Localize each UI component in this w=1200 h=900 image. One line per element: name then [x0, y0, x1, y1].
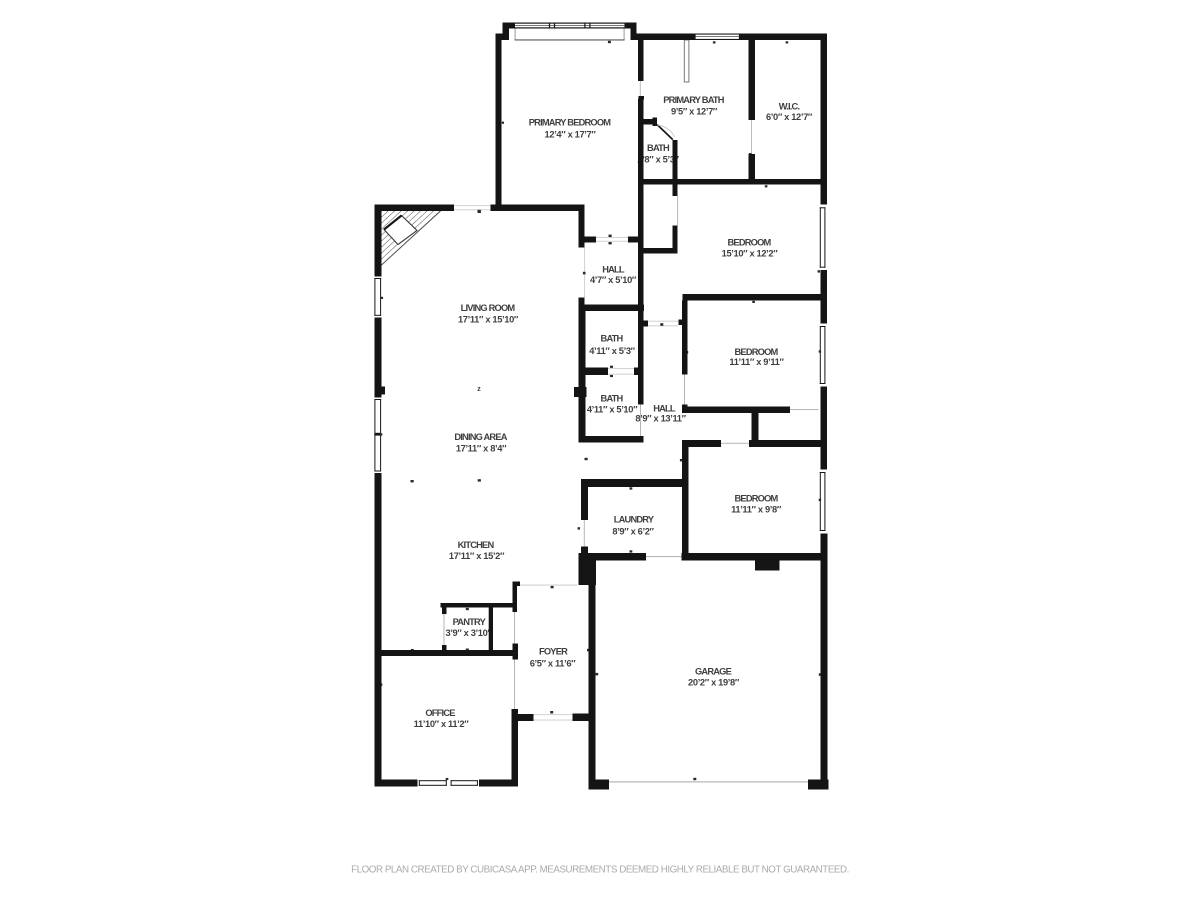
- svg-text:OFFICE: OFFICE: [425, 708, 455, 718]
- svg-text:BATH: BATH: [601, 393, 624, 403]
- svg-text:4’7″ x 5’10″: 4’7″ x 5’10″: [590, 275, 637, 285]
- svg-text:FOYER: FOYER: [539, 646, 568, 656]
- svg-text:17’11″ x 15’10″: 17’11″ x 15’10″: [458, 315, 519, 325]
- svg-text:BEDROOM: BEDROOM: [728, 238, 772, 248]
- svg-text:DINING AREA: DINING AREA: [454, 432, 507, 442]
- svg-text:W.I.C.: W.I.C.: [779, 101, 800, 111]
- svg-text:17’11″ x 15’2″: 17’11″ x 15’2″: [449, 551, 505, 561]
- svg-text:15’10″ x 12’2″: 15’10″ x 12’2″: [722, 249, 779, 259]
- svg-text:4’11″ x 5’10″: 4’11″ x 5’10″: [587, 404, 638, 414]
- svg-text:LIVING ROOM: LIVING ROOM: [461, 303, 516, 313]
- svg-text:BEDROOM: BEDROOM: [735, 493, 779, 503]
- svg-text:8’9″ x 6’2″: 8’9″ x 6’2″: [612, 526, 654, 536]
- svg-text:PANTRY: PANTRY: [453, 617, 487, 627]
- svg-text:11’11″ x 9’11″: 11’11″ x 9’11″: [729, 357, 784, 367]
- svg-text:HALL: HALL: [602, 264, 625, 274]
- svg-text:11’11″ x 9’8″: 11’11″ x 9’8″: [731, 505, 782, 515]
- svg-text:4’11″ x 5’3″: 4’11″ x 5’3″: [589, 346, 635, 356]
- svg-text:PRIMARY BEDROOM: PRIMARY BEDROOM: [529, 118, 612, 128]
- svg-text:20’2″ x 19’8″: 20’2″ x 19’8″: [688, 678, 740, 688]
- svg-text:FLOOR PLAN CREATED BY CUBICASA: FLOOR PLAN CREATED BY CUBICASA APP. MEAS…: [351, 865, 849, 876]
- svg-text:PRIMARY BATH: PRIMARY BATH: [663, 95, 725, 105]
- svg-text:GARAGE: GARAGE: [695, 667, 732, 677]
- svg-text:8’9″ x 13’11″: 8’9″ x 13’11″: [635, 413, 686, 423]
- svg-text:6’0″ x 12’7″: 6’0″ x 12’7″: [766, 112, 813, 122]
- svg-text:3’9″ x 3’10″: 3’9″ x 3’10″: [445, 628, 492, 638]
- svg-text:BATH: BATH: [601, 333, 624, 343]
- svg-text:BEDROOM: BEDROOM: [735, 347, 779, 357]
- svg-text:9’5″ x 12’7″: 9’5″ x 12’7″: [671, 106, 718, 116]
- svg-text:12’4″ x 17’7″: 12’4″ x 17’7″: [545, 129, 597, 139]
- svg-text:z: z: [477, 386, 481, 393]
- svg-text:BATH: BATH: [647, 143, 670, 153]
- svg-text:11’10″ x 11’2″: 11’10″ x 11’2″: [414, 719, 470, 729]
- svg-text:KITCHEN: KITCHEN: [458, 540, 495, 550]
- svg-text:HALL: HALL: [653, 404, 676, 414]
- svg-text:LAUNDRY: LAUNDRY: [614, 515, 655, 525]
- svg-text:6’5″ x 11’6″: 6’5″ x 11’6″: [530, 658, 576, 668]
- svg-text:17’11″ x 8’4″: 17’11″ x 8’4″: [456, 444, 507, 454]
